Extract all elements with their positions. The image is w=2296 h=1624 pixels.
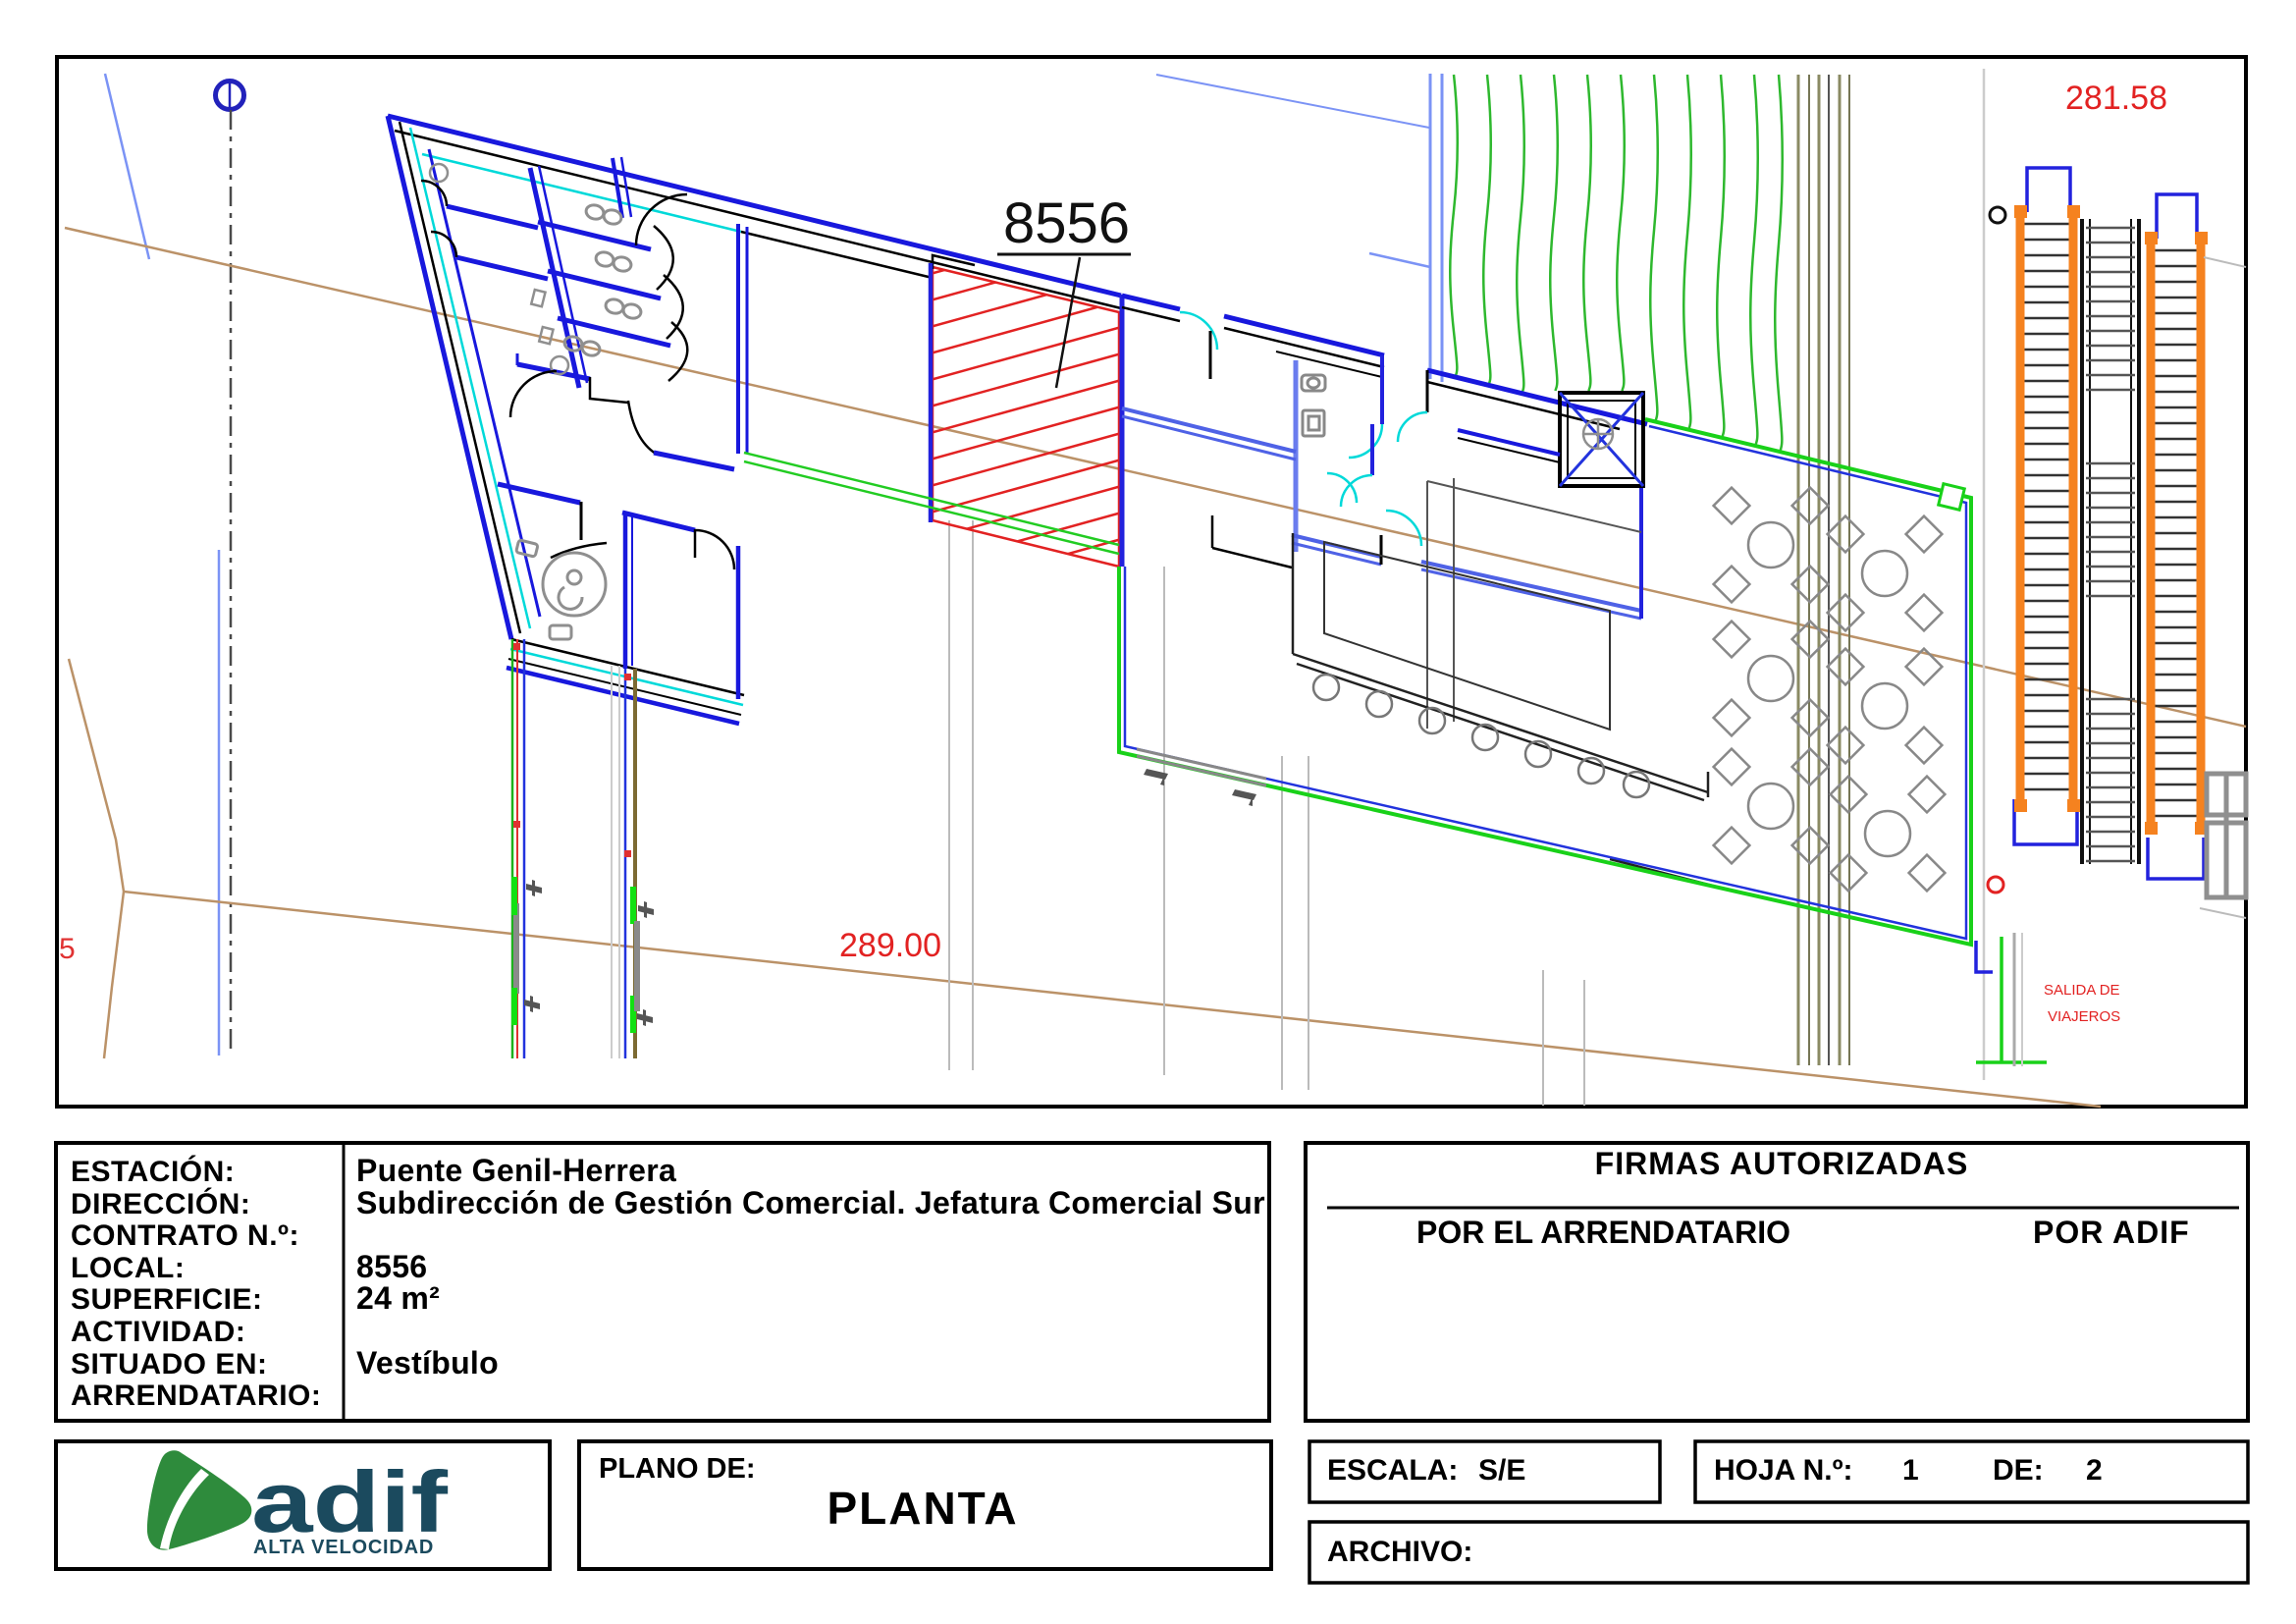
svg-text:1: 1	[1902, 1454, 1919, 1487]
svg-text:289.00: 289.00	[839, 927, 941, 964]
svg-text:ARRENDATARIO:: ARRENDATARIO:	[71, 1380, 321, 1412]
svg-text:ESTACIÓN:: ESTACIÓN:	[71, 1155, 235, 1188]
svg-text:PLANO DE:: PLANO DE:	[599, 1453, 756, 1485]
svg-text:CONTRATO N.º:: CONTRATO N.º:	[71, 1219, 299, 1252]
svg-text:ALTA VELOCIDAD: ALTA VELOCIDAD	[253, 1537, 434, 1558]
svg-text:PLANTA: PLANTA	[827, 1483, 1018, 1534]
svg-text:SUPERFICIE:: SUPERFICIE:	[71, 1283, 263, 1316]
svg-text:FIRMAS AUTORIZADAS: FIRMAS AUTORIZADAS	[1595, 1146, 1969, 1181]
svg-text:POR EL ARRENDATARIO: POR EL ARRENDATARIO	[1416, 1215, 1790, 1250]
svg-text:SALIDA DE: SALIDA DE	[2044, 982, 2120, 999]
svg-text:Vestíbulo: Vestíbulo	[356, 1345, 499, 1380]
svg-text:S/E: S/E	[1478, 1454, 1525, 1487]
svg-text:2: 2	[2086, 1454, 2103, 1487]
svg-text:24 m²: 24 m²	[356, 1280, 440, 1316]
svg-text:DE:: DE:	[1993, 1454, 2044, 1487]
svg-text:Subdirección de Gestión Comerc: Subdirección de Gestión Comercial. Jefat…	[356, 1185, 1265, 1220]
svg-text:LOCAL:: LOCAL:	[71, 1252, 185, 1284]
svg-text:ESCALA:: ESCALA:	[1327, 1454, 1458, 1487]
svg-text:8556: 8556	[1003, 191, 1130, 255]
svg-text:Puente Genil-Herrera: Puente Genil-Herrera	[356, 1153, 676, 1188]
svg-text:DIRECCIÓN:: DIRECCIÓN:	[71, 1187, 250, 1220]
svg-text:VIAJEROS: VIAJEROS	[2048, 1008, 2120, 1025]
svg-text:5: 5	[59, 933, 76, 965]
svg-text:281.58: 281.58	[2065, 80, 2167, 117]
svg-text:ARCHIVO:: ARCHIVO:	[1327, 1536, 1472, 1568]
svg-text:POR ADIF: POR ADIF	[2033, 1215, 2190, 1250]
svg-text:8556: 8556	[356, 1249, 427, 1284]
svg-text:SITUADO EN:: SITUADO EN:	[71, 1348, 268, 1380]
svg-text:ACTIVIDAD:: ACTIVIDAD:	[71, 1316, 245, 1348]
svg-text:HOJA N.º:: HOJA N.º:	[1714, 1454, 1853, 1487]
